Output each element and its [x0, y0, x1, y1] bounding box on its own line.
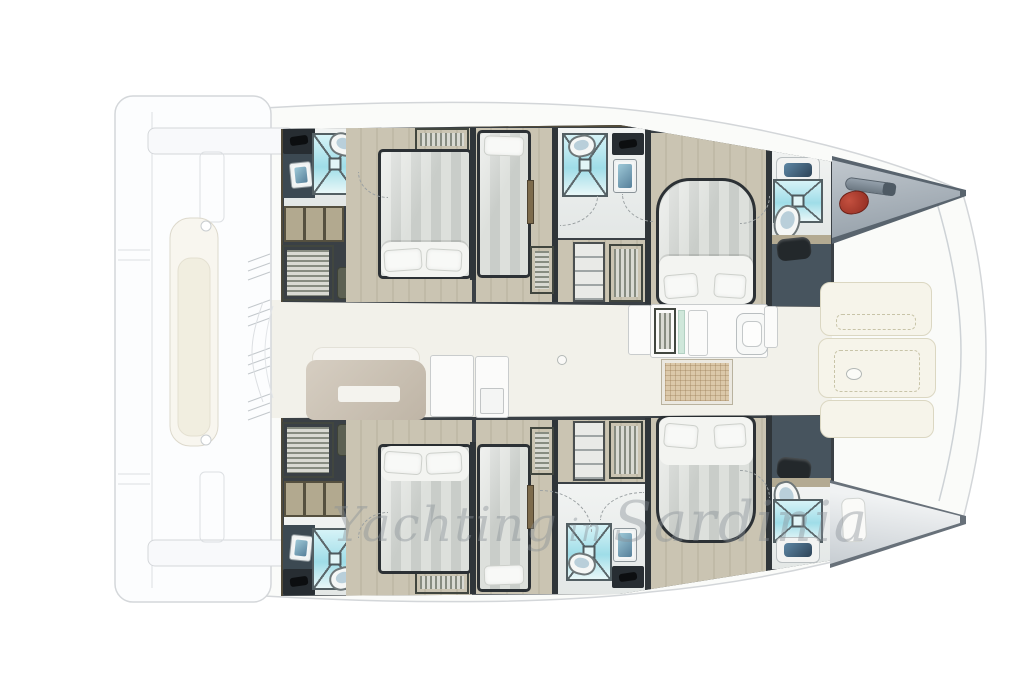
galley-sub — [480, 388, 504, 414]
galley-unit — [628, 305, 652, 355]
sun-pad — [820, 400, 934, 438]
deck-ring — [846, 368, 862, 380]
arc-bl — [622, 194, 654, 222]
arc-br — [560, 196, 598, 226]
arc-tr — [740, 470, 770, 498]
bow-cushion — [841, 497, 867, 542]
galley-unit — [764, 306, 778, 348]
galley-unit — [430, 355, 474, 417]
arc-tr — [540, 490, 592, 532]
deck-ring — [557, 355, 567, 365]
arc-tl — [600, 492, 644, 520]
yacht-floor-plan: Yachting in Sardinia — [0, 0, 1024, 694]
arc-bl — [358, 172, 388, 198]
fixture-layer — [0, 0, 1024, 694]
galley-unit — [688, 310, 708, 356]
sofa-slot — [338, 386, 400, 402]
hatch-grid — [662, 360, 732, 404]
arc-tl — [358, 512, 388, 538]
arc-br — [740, 196, 770, 224]
pad-stitch — [836, 314, 916, 330]
mint-strip — [678, 310, 685, 354]
louver-v — [654, 308, 676, 354]
